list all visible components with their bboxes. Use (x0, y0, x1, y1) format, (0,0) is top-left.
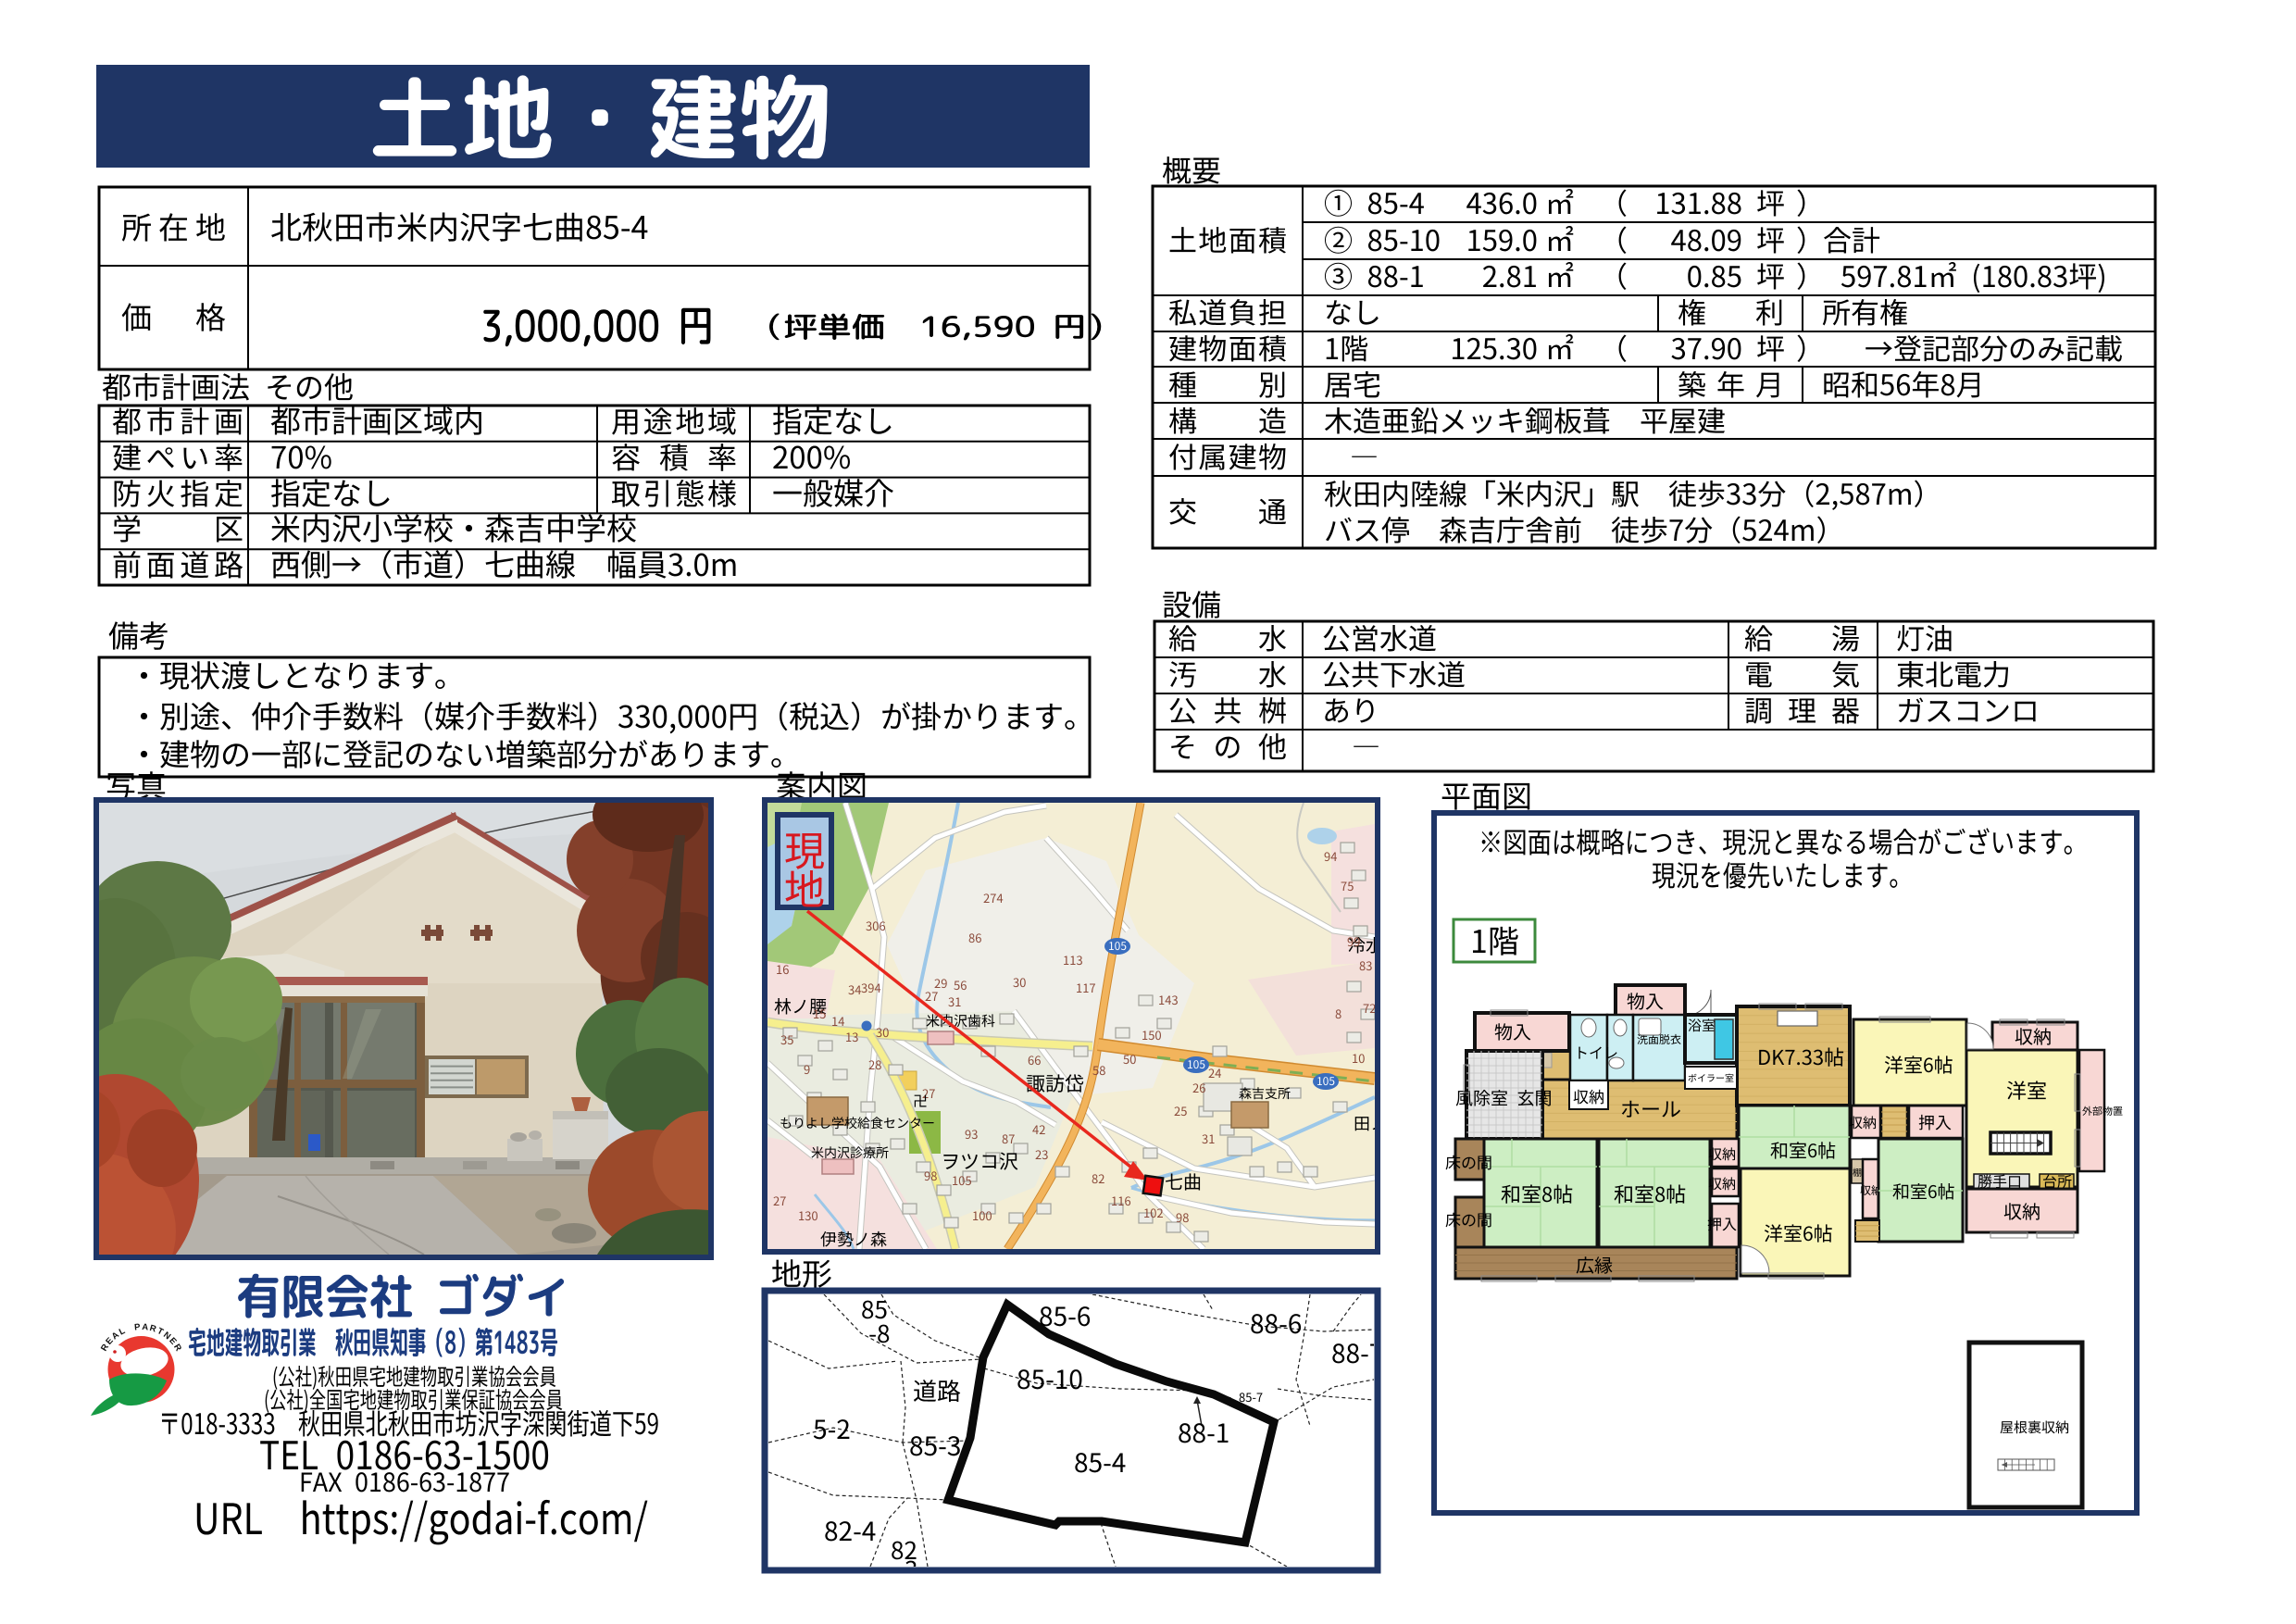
svg-text:A: A (142, 1322, 149, 1333)
